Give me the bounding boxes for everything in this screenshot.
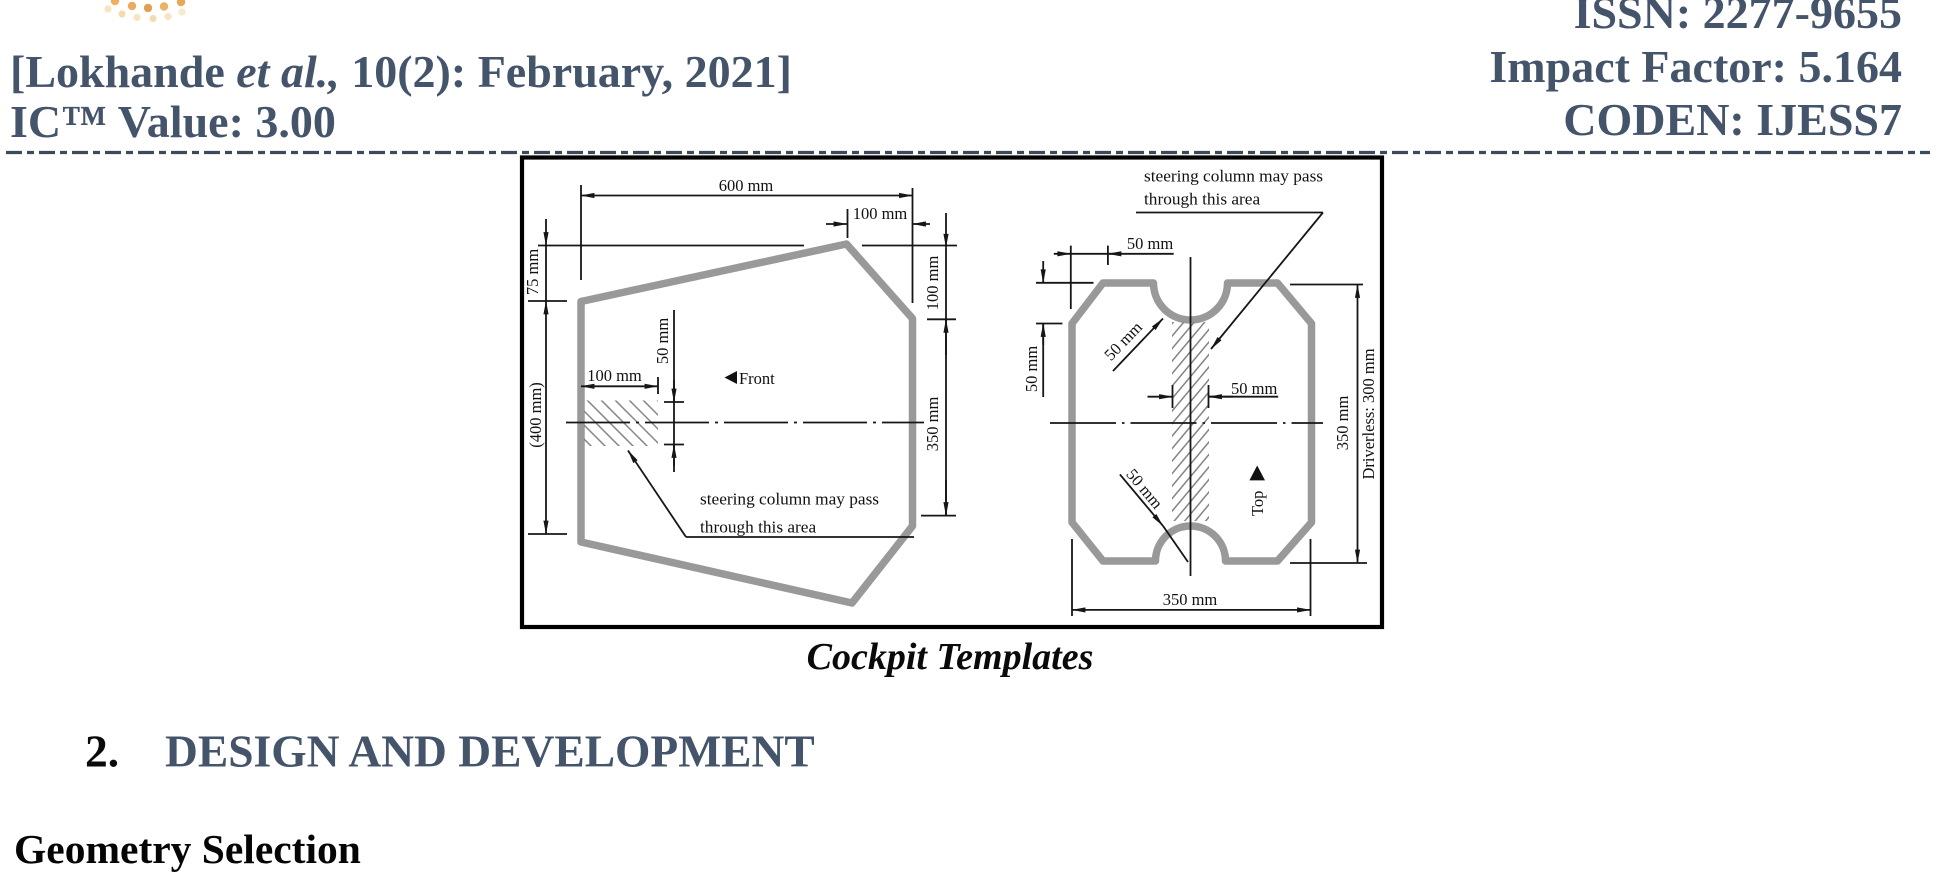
- svg-text:600 mm: 600 mm: [719, 176, 774, 195]
- svg-text:CODEN: IJESS7: CODEN: IJESS7: [1563, 94, 1902, 145]
- svg-text:through this area: through this area: [700, 518, 816, 537]
- svg-text:50 mm: 50 mm: [1022, 346, 1041, 392]
- svg-text:100 mm: 100 mm: [853, 204, 908, 223]
- svg-text:50 mm: 50 mm: [653, 318, 672, 364]
- svg-text:50 mm: 50 mm: [1127, 234, 1173, 253]
- svg-text:DESIGN AND DEVELOPMENT: DESIGN AND DEVELOPMENT: [165, 726, 815, 777]
- svg-text:75 mm: 75 mm: [523, 249, 542, 295]
- svg-text:100 mm: 100 mm: [923, 256, 942, 311]
- svg-text:350 mm: 350 mm: [1333, 396, 1352, 451]
- svg-text:100 mm: 100 mm: [587, 366, 642, 385]
- svg-text:Impact Factor: 5.164: Impact Factor: 5.164: [1489, 41, 1902, 92]
- svg-text:through this area: through this area: [1144, 190, 1260, 209]
- svg-text:Geometry Selection: Geometry Selection: [14, 826, 361, 872]
- svg-text:ISSN: 2277-9655: ISSN: 2277-9655: [1574, 0, 1902, 38]
- svg-text:Cockpit Templates: Cockpit Templates: [807, 636, 1094, 678]
- svg-text:IC™ Value: 3.00: IC™ Value: 3.00: [10, 96, 336, 147]
- svg-text:Top: Top: [1248, 491, 1267, 516]
- svg-text:[Lokhande et al., 10(2): Febru: [Lokhande et al., 10(2): February, 2021]: [10, 46, 792, 97]
- svg-text:steering column may pass: steering column may pass: [700, 490, 879, 509]
- svg-text:50 mm: 50 mm: [1231, 379, 1277, 398]
- svg-text:Front: Front: [739, 369, 775, 388]
- svg-text:(400 mm): (400 mm): [526, 382, 545, 448]
- svg-text:Driverless: 300 mm: Driverless: 300 mm: [1359, 348, 1378, 479]
- svg-text:steering column may pass: steering column may pass: [1144, 167, 1323, 186]
- svg-text:2.: 2.: [85, 726, 119, 777]
- svg-text:350 mm: 350 mm: [1163, 590, 1218, 609]
- svg-text:350 mm: 350 mm: [923, 397, 942, 452]
